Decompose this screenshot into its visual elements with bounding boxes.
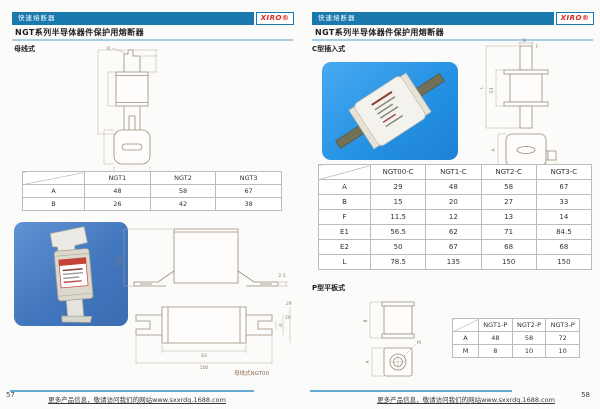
dim-label-b: B xyxy=(523,38,526,44)
c-type-drawing: B F L E1 A 2.5 2.5 xyxy=(480,40,596,172)
bracket-side-view: 68.5 2.5 xyxy=(117,229,288,286)
dimension-value: 33 xyxy=(536,195,591,210)
dim-29: 29 xyxy=(286,301,292,307)
dim-label-a: A xyxy=(365,360,371,364)
section-label-c-type: C型插入式 xyxy=(312,44,345,54)
row-label: A xyxy=(453,332,479,345)
busbar-fuse-drawing: R B A xyxy=(64,46,194,178)
dimension-value: 67 xyxy=(426,240,481,255)
dimension-value: 150 xyxy=(536,255,591,270)
table-corner-cell xyxy=(23,172,85,185)
p-type-top-view: M A xyxy=(365,340,421,376)
dimension-value: 48 xyxy=(426,180,481,195)
header-bar-label: 快速熔断器 xyxy=(12,12,254,25)
dimension-value: 84.5 xyxy=(536,225,591,240)
column-header: NGT1-P xyxy=(479,319,513,332)
p-type-drawing: B M A xyxy=(358,296,436,388)
column-header: NGT00-C xyxy=(371,165,426,180)
dimension-value: 68 xyxy=(536,240,591,255)
dim-2-5: 2.5 xyxy=(278,273,285,279)
dimension-value: 27 xyxy=(481,195,536,210)
table-row: B15202733 xyxy=(319,195,592,210)
ngt00-front-view: 83 100 9 20 29 xyxy=(136,301,292,371)
product-photo-busbar xyxy=(14,222,128,326)
dimension-value: 58 xyxy=(512,332,546,345)
footer-rule xyxy=(310,390,512,392)
table-row: A485872 xyxy=(453,332,580,345)
dim-label-a: A xyxy=(491,148,497,152)
dimension-value: 38 xyxy=(216,198,282,211)
busbar-dimension-table: NGT1NGT2NGT3A485867B264238 xyxy=(22,171,282,211)
column-header: NGT2 xyxy=(150,172,216,185)
dimension-value: 58 xyxy=(481,180,536,195)
table-row: M81010 xyxy=(453,345,580,358)
column-header: NGT1 xyxy=(85,172,151,185)
row-label: F xyxy=(319,210,371,225)
table-row: F11.5121314 xyxy=(319,210,592,225)
dim-68-5: 68.5 xyxy=(117,256,123,266)
busbar-fuse-photo-graphic xyxy=(14,222,128,326)
dimension-value: 12 xyxy=(426,210,481,225)
row-label: E1 xyxy=(319,225,371,240)
row-label: L xyxy=(319,255,371,270)
column-header: NGT3 xyxy=(216,172,282,185)
title-underline xyxy=(12,39,293,41)
page-title: NGT系列半导体器件保护用熔断器 xyxy=(15,27,144,38)
footer-text: 更多产品信息，敬请访问我们的网站www.sxxrdq.1688.com xyxy=(366,394,566,404)
row-label: E2 xyxy=(319,240,371,255)
dimension-value: 68 xyxy=(481,240,536,255)
footer-text: 更多产品信息，敬请访问我们的网站www.sxxrdq.1688.com xyxy=(42,394,232,404)
dim-label-b: B xyxy=(363,319,369,322)
dimension-value: 135 xyxy=(426,255,481,270)
c-type-dimension-table: NGT00-CNGT1-CNGT2-CNGT3-CA29485867B15202… xyxy=(318,164,592,270)
row-label: B xyxy=(23,198,85,211)
p-type-dimension-table: NGT1-PNGT2-PNGT3-PA485872M81010 xyxy=(452,318,580,358)
table-row: A485867 xyxy=(23,185,282,198)
dim-83: 83 xyxy=(201,353,207,359)
dim-label-radius: R xyxy=(107,46,110,52)
brand-logo: XIRO® xyxy=(556,12,594,25)
row-label: A xyxy=(319,180,371,195)
page-number: 58 xyxy=(581,391,590,399)
dimension-value: 26 xyxy=(85,198,151,211)
dim-label-e1: E1 xyxy=(489,87,495,93)
product-photo-c-type xyxy=(322,62,458,160)
dimension-value: 56.5 xyxy=(371,225,426,240)
dimension-value: 150 xyxy=(481,255,536,270)
ngt00-drawing: 68.5 2.5 83 100 9 20 29 xyxy=(116,215,294,379)
dimension-value: 11.5 xyxy=(371,210,426,225)
header-bar: 快速熔断器 xyxy=(12,12,254,25)
header-bar-label: 快速熔断器 xyxy=(312,12,554,25)
dimension-value: 13 xyxy=(481,210,536,225)
dimension-value: 8 xyxy=(479,345,513,358)
dimension-value: 50 xyxy=(371,240,426,255)
catalog-page-right: 快速熔断器 XIRO® NGT系列半导体器件保护用熔断器 C型插入式 xyxy=(306,0,594,409)
catalog-page-left: 快速熔断器 XIRO® NGT系列半导体器件保护用熔断器 母线式 xyxy=(6,0,294,409)
dimension-value: 72 xyxy=(546,332,580,345)
dimension-value: 10 xyxy=(512,345,546,358)
section-label-busbar: 母线式 xyxy=(14,44,35,54)
column-header: NGT3-C xyxy=(536,165,591,180)
ngt00-caption: 母线式NGT00 xyxy=(234,369,270,377)
table-row: E156.5627184.5 xyxy=(319,225,592,240)
dimension-value: 67 xyxy=(216,185,282,198)
c-type-fuse-photo-graphic xyxy=(322,62,458,160)
dimension-value: 62 xyxy=(426,225,481,240)
dimension-value: 48 xyxy=(85,185,151,198)
table-row: L78.5135150150 xyxy=(319,255,592,270)
dimension-value: 10 xyxy=(546,345,580,358)
p-type-side-view: B xyxy=(363,302,414,338)
dim-label-f: F xyxy=(536,44,539,50)
dimension-value: 58 xyxy=(150,185,216,198)
dimension-value: 78.5 xyxy=(371,255,426,270)
brand-logo: XIRO® xyxy=(256,12,294,25)
dim-label-m: M xyxy=(417,340,421,346)
dimension-value: 48 xyxy=(479,332,513,345)
page-title: NGT系列半导体器件保护用熔断器 xyxy=(315,27,444,38)
column-header: NGT2-C xyxy=(481,165,536,180)
dim-100: 100 xyxy=(200,365,209,371)
dimension-value: 42 xyxy=(150,198,216,211)
page-number: 57 xyxy=(6,391,15,399)
dimension-value: 14 xyxy=(536,210,591,225)
dim-9: 9 xyxy=(279,323,282,329)
table-corner-cell xyxy=(453,319,479,332)
dimension-value: 67 xyxy=(536,180,591,195)
table-row: B264238 xyxy=(23,198,282,211)
footer-rule xyxy=(10,390,254,392)
fuse-front-view xyxy=(116,50,148,134)
table-row: A29485867 xyxy=(319,180,592,195)
row-label: M xyxy=(453,345,479,358)
header-bar: 快速熔断器 xyxy=(312,12,554,25)
section-label-p-type: P型平板式 xyxy=(312,283,345,293)
column-header: NGT2-P xyxy=(512,319,546,332)
c-type-front-view: B F L E1 xyxy=(479,38,548,128)
table-corner-cell xyxy=(319,165,371,180)
dimension-value: 15 xyxy=(371,195,426,210)
column-header: NGT1-C xyxy=(426,165,481,180)
dimension-value: 71 xyxy=(481,225,536,240)
row-label: B xyxy=(319,195,371,210)
column-header: NGT3-P xyxy=(546,319,580,332)
dim-label-l: L xyxy=(479,86,485,89)
dimension-value: 29 xyxy=(371,180,426,195)
dimension-value: 20 xyxy=(426,195,481,210)
row-label: A xyxy=(23,185,85,198)
table-row: E250676868 xyxy=(319,240,592,255)
